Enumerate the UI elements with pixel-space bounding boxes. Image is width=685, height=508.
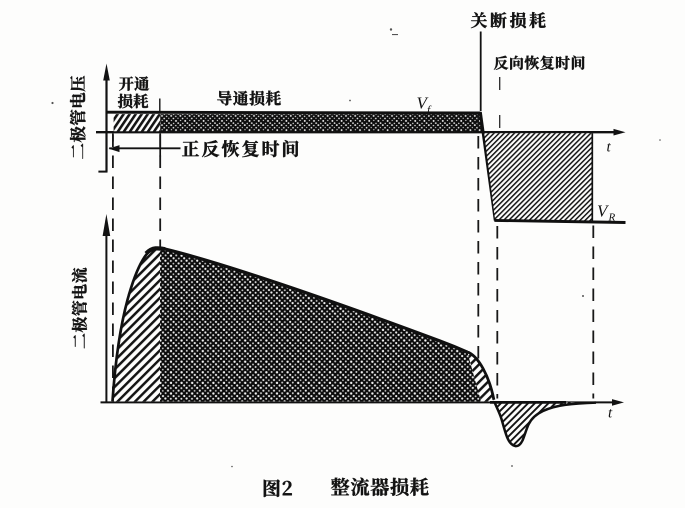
svg-text:R: R (608, 212, 616, 224)
